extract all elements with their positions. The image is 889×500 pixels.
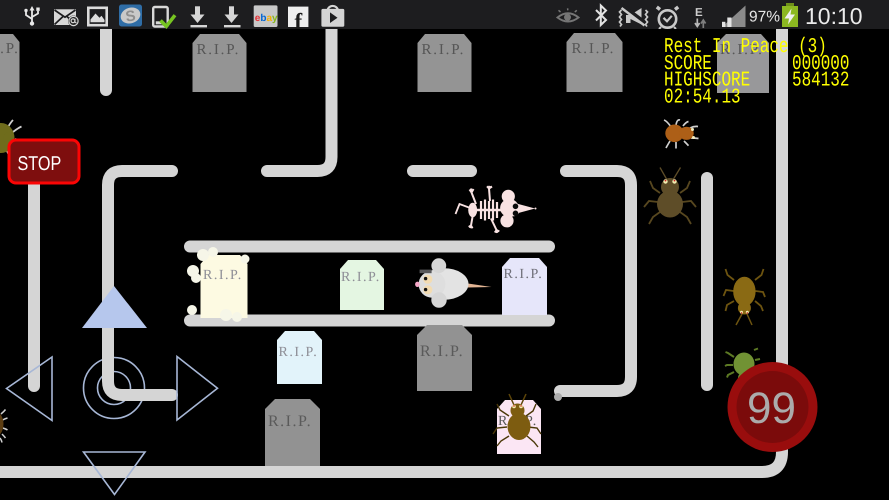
svg-text:R.I.P.: R.I.P. — [504, 267, 544, 282]
svg-text:R.I.P.: R.I.P. — [268, 413, 312, 430]
svg-text:R.I.P.: R.I.P. — [0, 41, 20, 57]
svg-text:99: 99 — [747, 384, 796, 433]
svg-text:R.I.P.: R.I.P. — [422, 42, 466, 58]
svg-text:R.I.P.: R.I.P. — [197, 42, 241, 58]
svg-text:STOP: STOP — [18, 153, 62, 175]
svg-text:R.I.P.: R.I.P. — [420, 343, 464, 360]
svg-text:R.I.P.: R.I.P. — [341, 270, 381, 285]
svg-text:R.I.P.: R.I.P. — [279, 345, 319, 360]
svg-text:10:10: 10:10 — [805, 3, 863, 29]
svg-text:02:54.13: 02:54.13 — [664, 86, 741, 109]
svg-text:R.I.P.: R.I.P. — [203, 268, 243, 283]
svg-text:f: f — [295, 9, 303, 29]
svg-text:97%: 97% — [749, 9, 780, 26]
svg-text:584132: 584132 — [792, 70, 849, 93]
svg-text:ebay: ebay — [255, 13, 278, 24]
svg-text:E: E — [695, 7, 703, 19]
svg-text:R.I.P.: R.I.P. — [572, 41, 616, 57]
